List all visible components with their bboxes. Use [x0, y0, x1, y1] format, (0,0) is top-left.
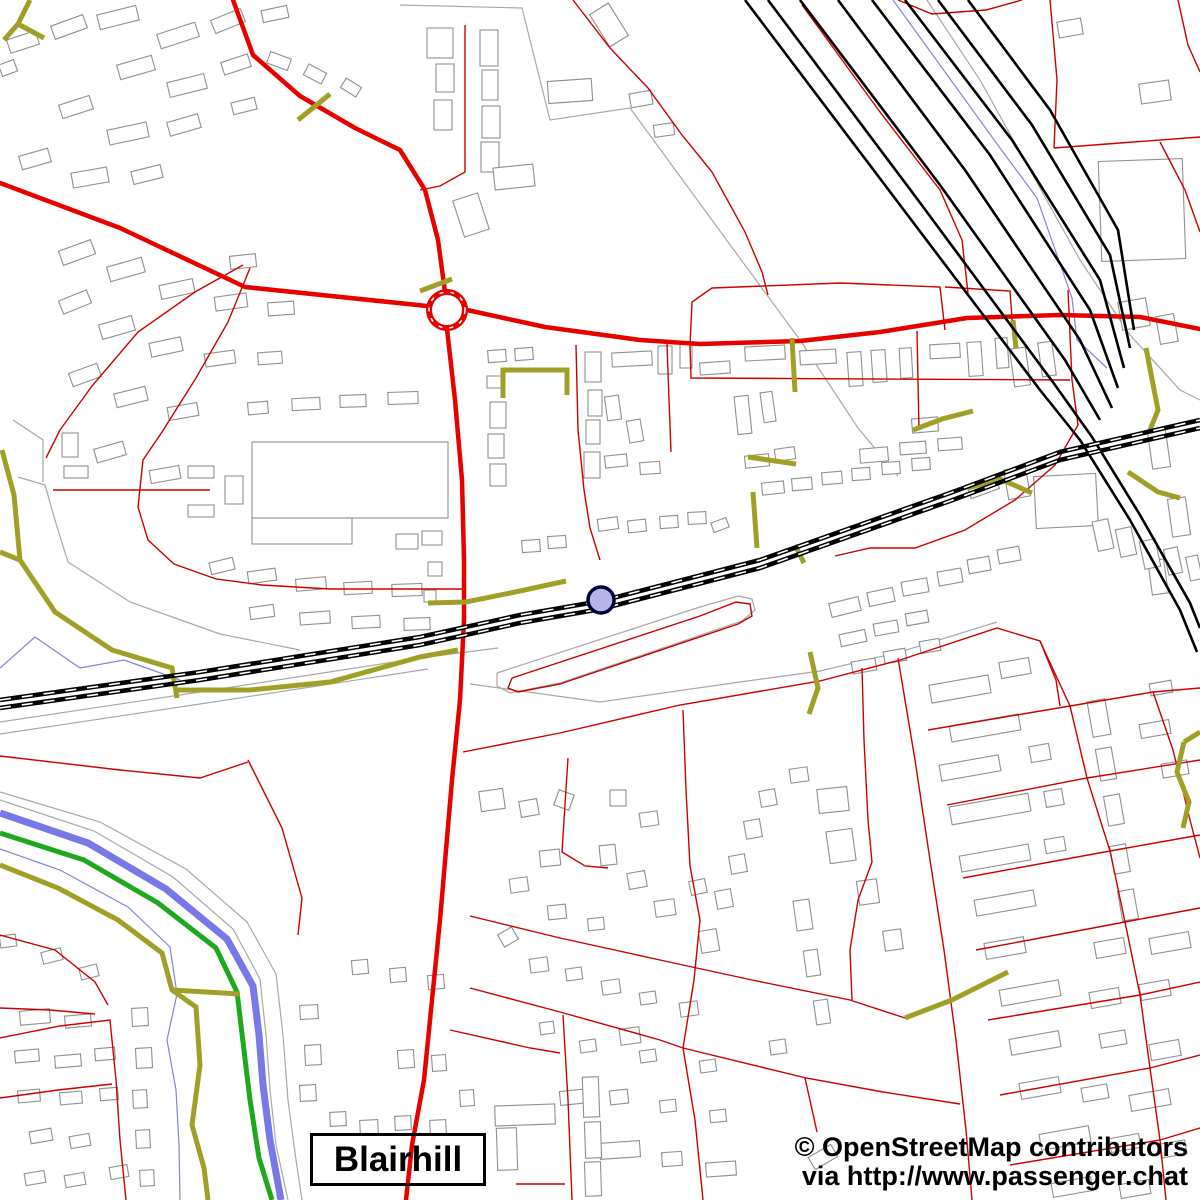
map-view: Blairhill © OpenStreetMap contributors v…	[0, 0, 1200, 1200]
place-label-text: Blairhill	[334, 1140, 462, 1180]
map-svg	[0, 0, 1200, 1200]
place-label-box: Blairhill	[310, 1133, 486, 1186]
map-attribution: © OpenStreetMap contributors via http://…	[795, 1133, 1188, 1192]
railway-station-marker	[588, 587, 614, 613]
attribution-line-1: © OpenStreetMap contributors	[795, 1133, 1188, 1163]
attribution-line-2: via http://www.passenger.chat	[795, 1162, 1188, 1192]
